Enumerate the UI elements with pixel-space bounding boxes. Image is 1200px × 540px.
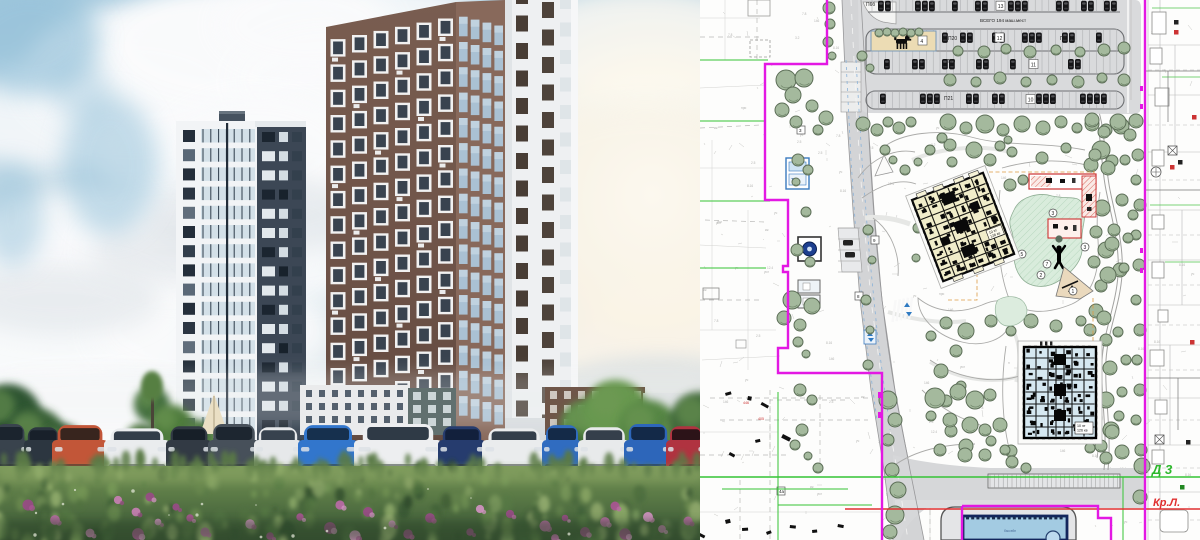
svg-text:2: 2 xyxy=(1040,273,1043,279)
svg-text:Кр.Л.: Кр.Л. xyxy=(1153,497,1180,509)
svg-text:7.8: 7.8 xyxy=(802,12,807,16)
svg-text:446: 446 xyxy=(743,401,749,405)
svg-text:уч: уч xyxy=(1124,520,1128,524)
svg-text:3: 3 xyxy=(1052,211,1055,217)
svg-text:П8: П8 xyxy=(1060,36,1067,42)
svg-text:П19: П19 xyxy=(946,59,955,65)
svg-text:усл: усл xyxy=(960,365,965,369)
svg-text:5: 5 xyxy=(1021,252,1024,258)
svg-text:2.5: 2.5 xyxy=(797,140,802,144)
svg-text:уч: уч xyxy=(839,170,843,174)
svg-text:7.8: 7.8 xyxy=(728,33,733,37)
svg-text:126 кв: 126 кв xyxy=(1077,429,1088,433)
svg-text:уч: уч xyxy=(745,378,749,382)
svg-text:7: 7 xyxy=(1046,262,1049,268)
svg-text:при: при xyxy=(939,292,944,296)
svg-text:10 эт: 10 эт xyxy=(1077,424,1086,428)
svg-text:4а: 4а xyxy=(779,489,785,494)
svg-text:2.5: 2.5 xyxy=(756,334,761,338)
svg-text:уч: уч xyxy=(936,126,940,130)
svg-text:8.16: 8.16 xyxy=(1138,347,1144,351)
svg-text:при: при xyxy=(741,106,746,110)
svg-text:10: 10 xyxy=(1028,97,1034,103)
svg-text:12: 12 xyxy=(997,36,1003,42)
svg-text:уч: уч xyxy=(1191,272,1195,276)
svg-text:8.16: 8.16 xyxy=(826,341,832,345)
svg-text:ВСЕГО 194 маш.мест: ВСЕГО 194 маш.мест xyxy=(980,18,1027,23)
svg-text:8.16: 8.16 xyxy=(747,184,753,188)
svg-text:П20: П20 xyxy=(948,36,957,42)
svg-text:3.2: 3.2 xyxy=(795,36,800,40)
svg-text:146: 146 xyxy=(948,308,954,312)
svg-text:П21: П21 xyxy=(944,96,953,102)
svg-text:146: 146 xyxy=(1060,449,1066,453)
svg-text:8.16: 8.16 xyxy=(1154,340,1160,344)
svg-text:13: 13 xyxy=(998,4,1004,10)
svg-text:405: 405 xyxy=(758,417,764,421)
svg-text:3: 3 xyxy=(1084,245,1087,251)
svg-text:усл: усл xyxy=(764,270,769,274)
svg-text:11: 11 xyxy=(1031,62,1036,68)
svg-text:12.4: 12.4 xyxy=(931,430,937,434)
svg-text:П6б: П6б xyxy=(866,2,875,8)
svg-text:Д 3: Д 3 xyxy=(1151,462,1173,477)
svg-text:2.5: 2.5 xyxy=(829,400,834,404)
svg-text:2.5: 2.5 xyxy=(818,151,823,155)
svg-text:146: 146 xyxy=(723,400,729,404)
svg-text:бассейн: бассейн xyxy=(1004,529,1016,533)
svg-text:4: 4 xyxy=(920,39,923,45)
svg-text:уч: уч xyxy=(774,211,778,215)
svg-text:уч: уч xyxy=(913,294,917,298)
svg-text:146: 146 xyxy=(829,357,835,361)
svg-text:1: 1 xyxy=(1072,289,1075,295)
svg-text:7.8: 7.8 xyxy=(714,319,719,323)
svg-text:н: н xyxy=(1008,361,1010,365)
svg-text:8.16: 8.16 xyxy=(833,46,839,50)
svg-text:усл: усл xyxy=(817,492,822,496)
svg-text:146: 146 xyxy=(924,381,930,385)
svg-text:7.8: 7.8 xyxy=(836,134,841,138)
svg-text:12.4: 12.4 xyxy=(767,266,773,270)
svg-text:2.5: 2.5 xyxy=(751,161,756,165)
svg-text:уч: уч xyxy=(856,439,860,443)
svg-text:146: 146 xyxy=(814,19,820,23)
svg-text:146: 146 xyxy=(1001,176,1007,180)
svg-text:8.16: 8.16 xyxy=(840,189,846,193)
